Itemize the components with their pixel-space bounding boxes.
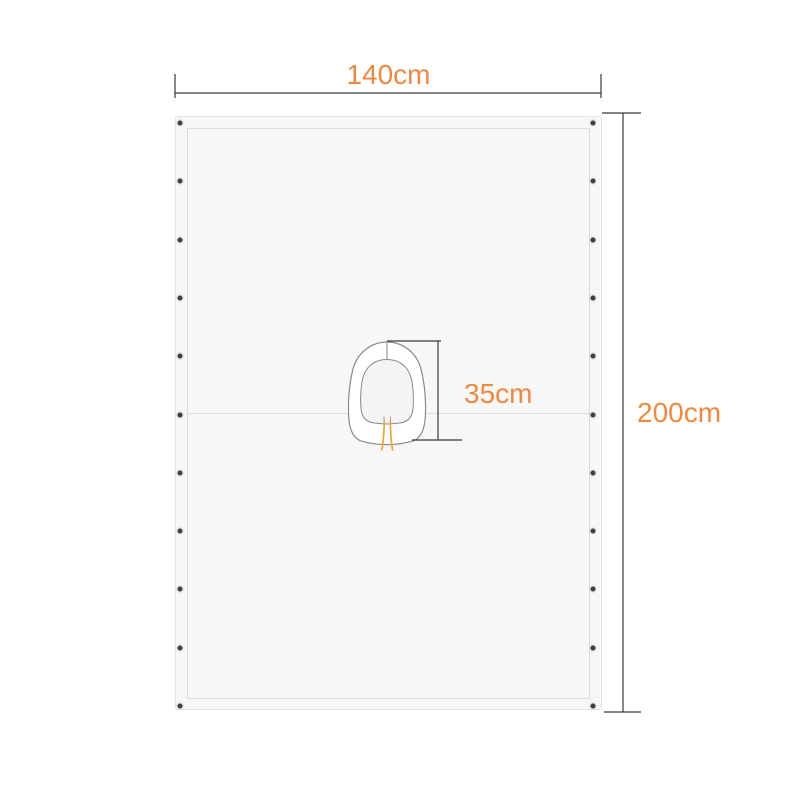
- grommet-dot: [591, 121, 596, 126]
- grommet-dot: [178, 587, 183, 592]
- grommet-dot: [178, 121, 183, 126]
- hood-dimension-label: 35cm: [464, 379, 532, 409]
- center-seam-line: [187, 413, 590, 414]
- grommet-dot: [591, 645, 596, 650]
- grommet-dot: [591, 412, 596, 417]
- grommet-dot: [178, 412, 183, 417]
- grommet-dot: [178, 470, 183, 475]
- height-dimension-label: 200cm: [637, 398, 721, 428]
- grommet-dot: [591, 237, 596, 242]
- grommet-dot: [178, 645, 183, 650]
- height-dimension: [602, 113, 641, 712]
- grommet-dot: [178, 529, 183, 534]
- grommet-dot: [591, 470, 596, 475]
- grommet-dot: [591, 354, 596, 359]
- grommet-dot: [591, 587, 596, 592]
- width-dimension-label: 140cm: [175, 60, 602, 90]
- grommet-dot: [591, 704, 596, 709]
- grommet-dot: [178, 704, 183, 709]
- product-dimension-diagram: 140cm 200cm 35cm: [0, 0, 800, 800]
- grommet-dot: [178, 354, 183, 359]
- grommet-dot: [591, 179, 596, 184]
- grommet-dot: [591, 295, 596, 300]
- grommet-dot: [591, 529, 596, 534]
- grommet-dot: [178, 237, 183, 242]
- grommet-dot: [178, 295, 183, 300]
- grommet-dot: [178, 179, 183, 184]
